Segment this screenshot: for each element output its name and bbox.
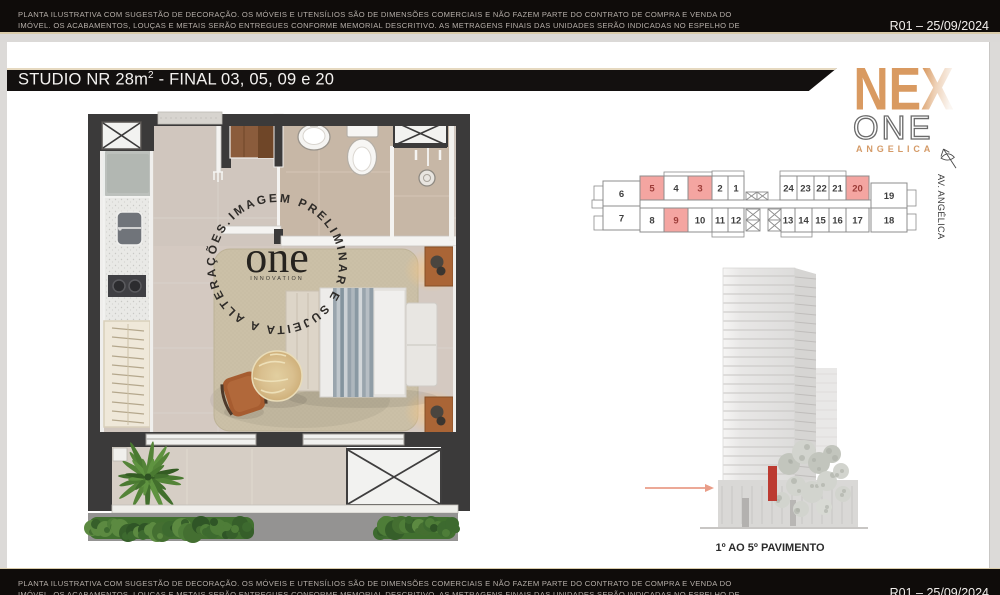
svg-text:7: 7: [619, 214, 624, 225]
svg-text:24: 24: [783, 184, 794, 195]
svg-text:13: 13: [783, 216, 794, 227]
svg-text:22: 22: [816, 184, 827, 195]
svg-text:5: 5: [649, 184, 655, 195]
svg-text:21: 21: [832, 184, 843, 195]
svg-text:23: 23: [800, 184, 811, 195]
svg-text:4: 4: [673, 184, 679, 195]
svg-text:18: 18: [884, 216, 895, 227]
svg-text:6: 6: [619, 189, 624, 200]
svg-text:8: 8: [649, 216, 654, 227]
svg-text:1: 1: [733, 184, 739, 195]
svg-text:20: 20: [852, 184, 863, 195]
svg-text:16: 16: [832, 216, 843, 227]
svg-text:19: 19: [884, 191, 895, 202]
svg-text:2: 2: [717, 184, 722, 195]
svg-text:11: 11: [715, 216, 726, 227]
svg-text:17: 17: [852, 216, 863, 227]
svg-text:14: 14: [798, 216, 809, 227]
svg-text:3: 3: [697, 184, 702, 195]
svg-text:INNOVATION: INNOVATION: [250, 276, 303, 282]
svg-text:one: one: [245, 233, 309, 282]
svg-text:9: 9: [673, 216, 678, 227]
svg-text:15: 15: [815, 216, 826, 227]
svg-text:10: 10: [695, 216, 706, 227]
svg-text:12: 12: [731, 216, 742, 227]
